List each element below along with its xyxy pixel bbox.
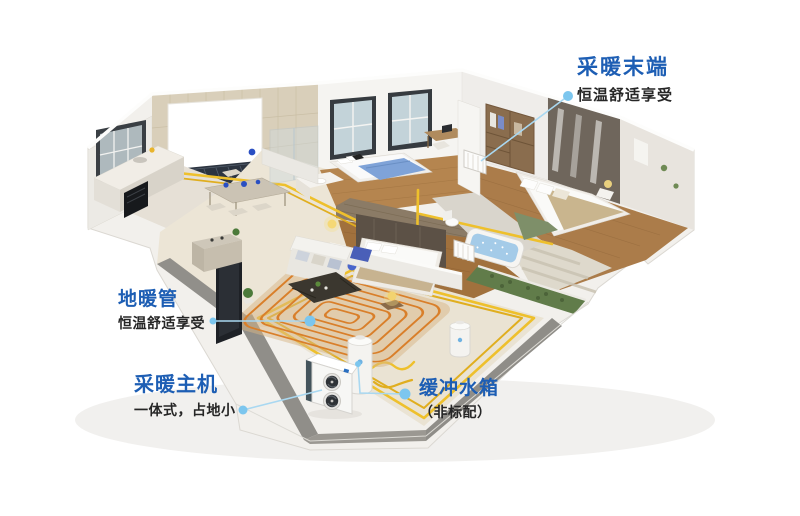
door-wall xyxy=(458,100,480,196)
callout-subtitle: （非标配） xyxy=(419,405,499,420)
fan-2 xyxy=(324,393,341,410)
callout-title: 地暖管 xyxy=(118,290,205,310)
callout-title: 采暖主机 xyxy=(134,375,236,396)
callout-heating-terminal: 采暖末端 恒温舒适享受 xyxy=(577,57,673,104)
callout-heating-main-unit: 采暖主机 一体式，占地小 xyxy=(134,375,236,418)
window-2 xyxy=(388,89,432,151)
window-1 xyxy=(330,96,376,160)
callout-subtitle: 恒温舒适享受 xyxy=(577,88,673,104)
callout-floor-heating-pipe: 地暖管 恒温舒适享受 xyxy=(118,290,205,331)
callout-buffer-tank: 缓冲水箱 （非标配） xyxy=(419,379,499,420)
callout-subtitle: 恒温舒适享受 xyxy=(118,316,205,331)
indoor-cylinder-unit xyxy=(450,321,470,357)
floor-heating-infographic: 采暖末端 恒温舒适享受 地暖管 恒温舒适享受 采暖主机 一体式，占地小 缓冲水箱… xyxy=(0,0,800,516)
fan-1 xyxy=(324,374,341,391)
callout-title: 采暖末端 xyxy=(577,57,673,79)
callout-title: 缓冲水箱 xyxy=(419,379,499,399)
apartment-cutaway-illustration xyxy=(0,0,800,516)
callout-subtitle: 一体式，占地小 xyxy=(134,403,236,418)
